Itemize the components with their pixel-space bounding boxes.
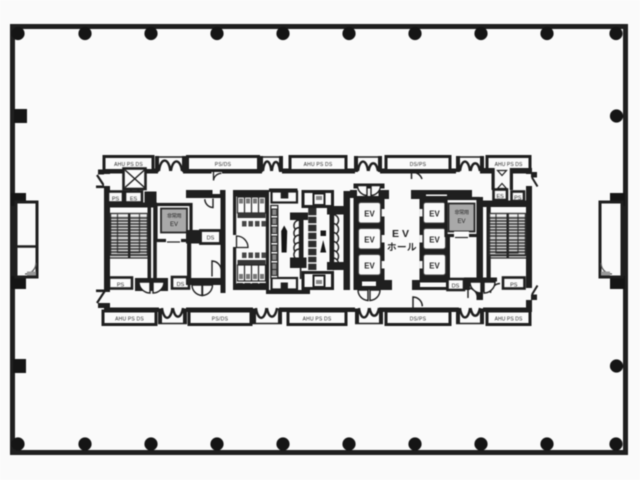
svg-text:EV: EV [429, 236, 440, 245]
svg-text:DS: DS [207, 236, 215, 242]
svg-text:PS: PS [510, 283, 518, 289]
svg-text:PS: PS [117, 283, 125, 289]
svg-text:非常用: 非常用 [454, 208, 469, 216]
svg-text:PS: PS [112, 197, 120, 203]
svg-text:PS/DS: PS/DS [215, 162, 232, 168]
svg-text:DS/PS: DS/PS [410, 317, 427, 323]
svg-text:ホール: ホール [387, 243, 417, 254]
svg-text:AHU PS DS: AHU PS DS [495, 317, 523, 323]
svg-text:非常用: 非常用 [167, 212, 182, 220]
svg-text:AHU PS DS: AHU PS DS [114, 162, 143, 168]
svg-text:EV: EV [457, 219, 465, 225]
svg-text:EV: EV [364, 262, 375, 271]
svg-text:DS/PS: DS/PS [410, 162, 427, 168]
svg-text:AHU PS DS: AHU PS DS [115, 317, 144, 323]
svg-text:EV: EV [364, 210, 375, 219]
svg-text:ES: ES [130, 197, 138, 203]
svg-text:EV: EV [364, 236, 375, 245]
svg-text:DS: DS [452, 284, 460, 290]
svg-text:EV: EV [170, 222, 178, 228]
svg-text:DS: DS [177, 282, 185, 288]
svg-text:EV: EV [429, 210, 440, 219]
svg-text:AHU PS DS: AHU PS DS [495, 162, 523, 168]
svg-text:PS/DS: PS/DS [212, 317, 229, 323]
svg-text:AHU PS DS: AHU PS DS [304, 162, 333, 168]
svg-text:ES: ES [497, 194, 505, 200]
svg-text:EV: EV [429, 262, 440, 271]
svg-text:EV: EV [392, 228, 412, 240]
svg-text:AHU PS DS: AHU PS DS [303, 317, 332, 323]
